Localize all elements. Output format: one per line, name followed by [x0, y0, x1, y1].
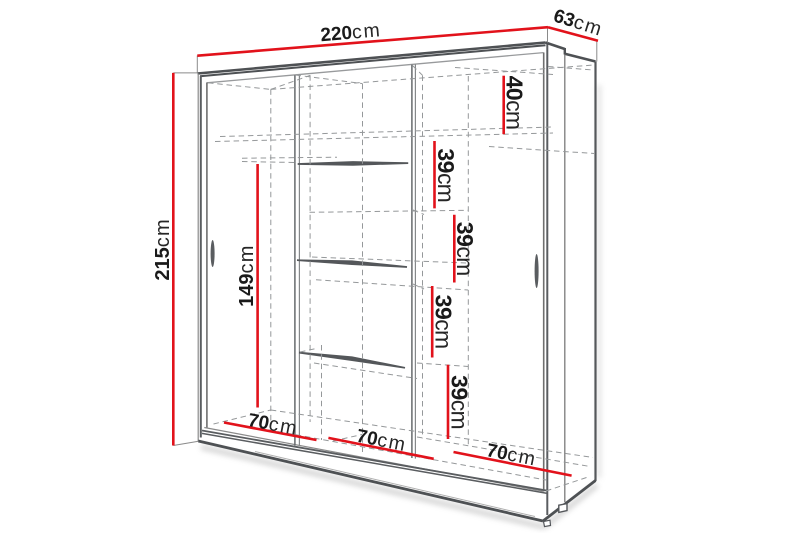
svg-text:70cm: 70cm [246, 409, 300, 440]
svg-text:39cm: 39cm [431, 295, 457, 349]
svg-text:39cm: 39cm [446, 375, 472, 429]
svg-text:70cm: 70cm [485, 439, 539, 471]
svg-text:40cm: 40cm [501, 76, 527, 130]
svg-text:215cm: 215cm [152, 218, 174, 280]
svg-text:39cm: 39cm [452, 222, 478, 276]
svg-text:149cm: 149cm [236, 244, 258, 306]
svg-text:39cm: 39cm [433, 148, 459, 202]
